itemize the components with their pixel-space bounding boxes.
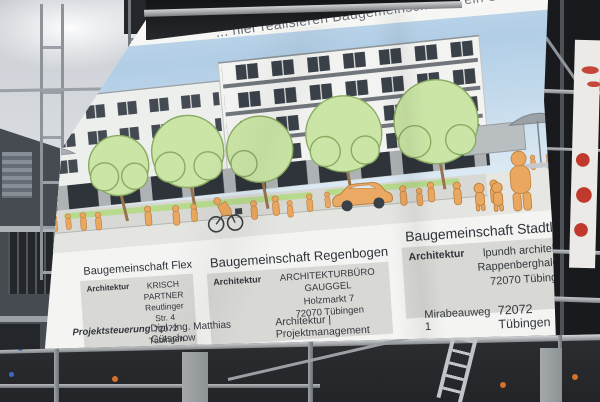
partial-red-sign <box>569 40 600 269</box>
scaffold-coupler <box>112 376 118 382</box>
scaffold-coupler <box>500 382 506 388</box>
role-label: Architektur <box>408 247 474 313</box>
footer-street: Mirabeauweg 1 <box>424 306 499 334</box>
concrete-pillar <box>182 352 208 402</box>
balcony-slab <box>0 316 54 322</box>
scaffold-clamp <box>9 372 14 377</box>
building-shutter <box>2 152 32 198</box>
guardrail-lower <box>0 384 320 388</box>
footer-person: Dipl.-Ing. Matthias Gütschow <box>150 317 276 345</box>
firm-name: KRISCH PARTNER <box>138 278 188 303</box>
footer-services: Architektur | Projektmanagement <box>275 309 425 340</box>
scaffold-coupler <box>572 374 578 380</box>
concrete-pillar <box>540 348 562 402</box>
construction-site-photo: ... hier realisieren Baugemeinschaften e… <box>0 0 600 402</box>
footer-role-label: Projektsteuerung <box>72 324 151 339</box>
scaffold-post <box>308 336 313 402</box>
